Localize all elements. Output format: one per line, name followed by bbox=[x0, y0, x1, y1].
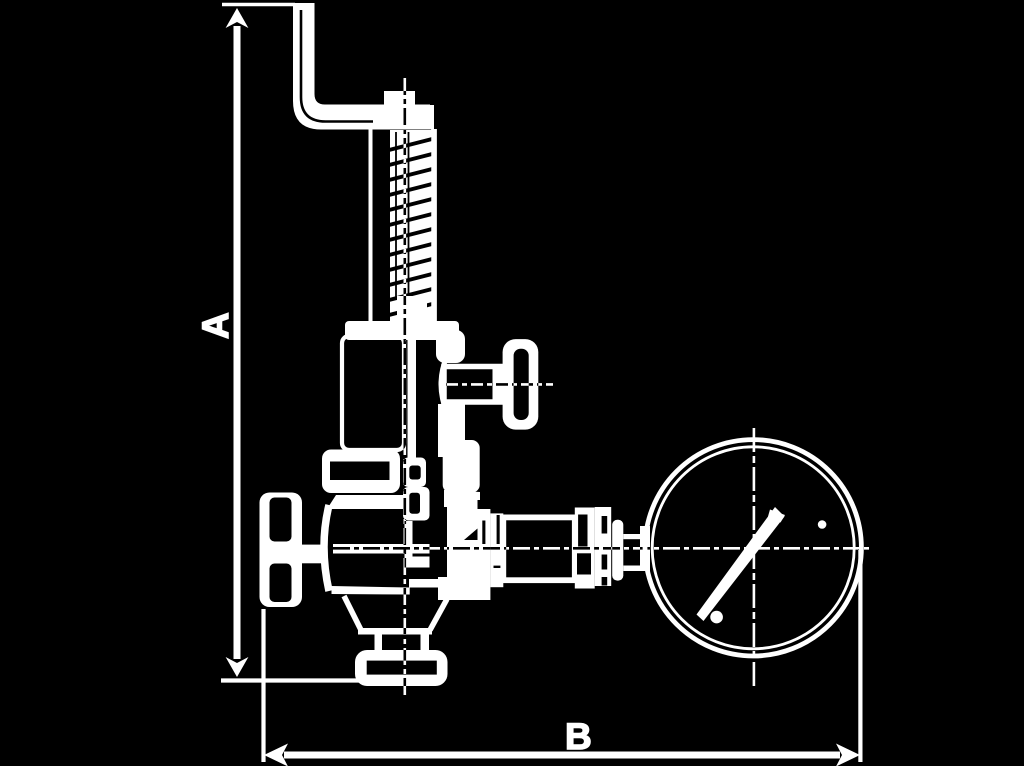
svg-text:B: B bbox=[565, 716, 592, 757]
svg-text:A: A bbox=[195, 312, 236, 339]
